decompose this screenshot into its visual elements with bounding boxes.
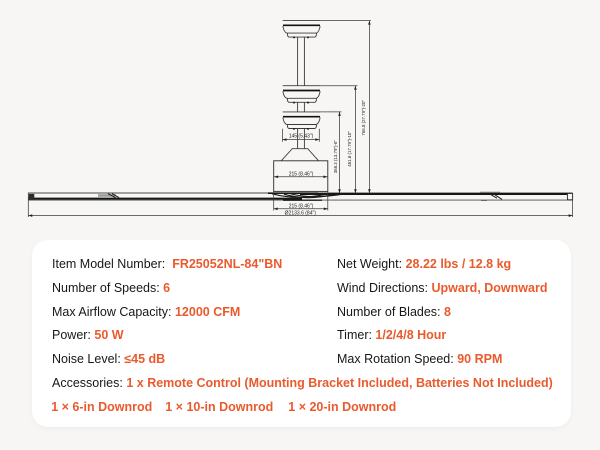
svg-text:368.3 (13.79")-6": 368.3 (13.79")-6" bbox=[333, 140, 338, 174]
svg-text:766.8 (27.79")-20": 766.8 (27.79")-20" bbox=[361, 100, 366, 136]
svg-text:451.8 (17.79")-10": 451.8 (17.79")-10" bbox=[347, 131, 352, 167]
svg-text:215 (8.46"): 215 (8.46") bbox=[289, 203, 314, 209]
svg-text:145 (5.43"): 145 (5.43") bbox=[289, 134, 314, 140]
svg-text:Ø2133.6 (84"): Ø2133.6 (84") bbox=[285, 211, 317, 217]
svg-text:215 (8.46"): 215 (8.46") bbox=[289, 171, 314, 177]
